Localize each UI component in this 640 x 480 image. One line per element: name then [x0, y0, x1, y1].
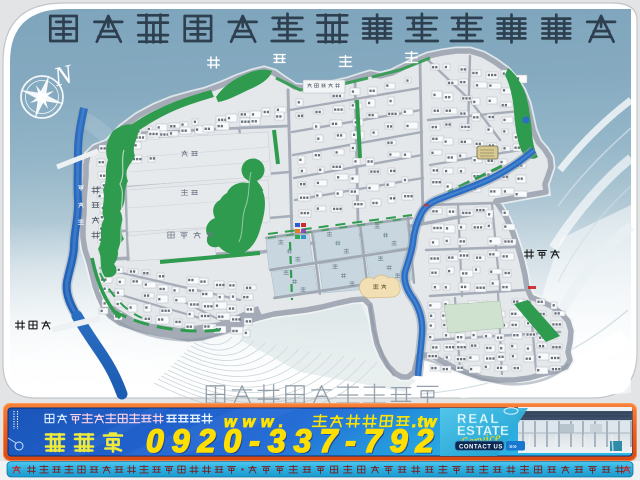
svg-text:»»: »»: [509, 444, 517, 451]
svg-text:CONTACT US: CONTACT US: [459, 445, 503, 451]
svg-text:0920-337-792: 0920-337-792: [146, 423, 441, 459]
